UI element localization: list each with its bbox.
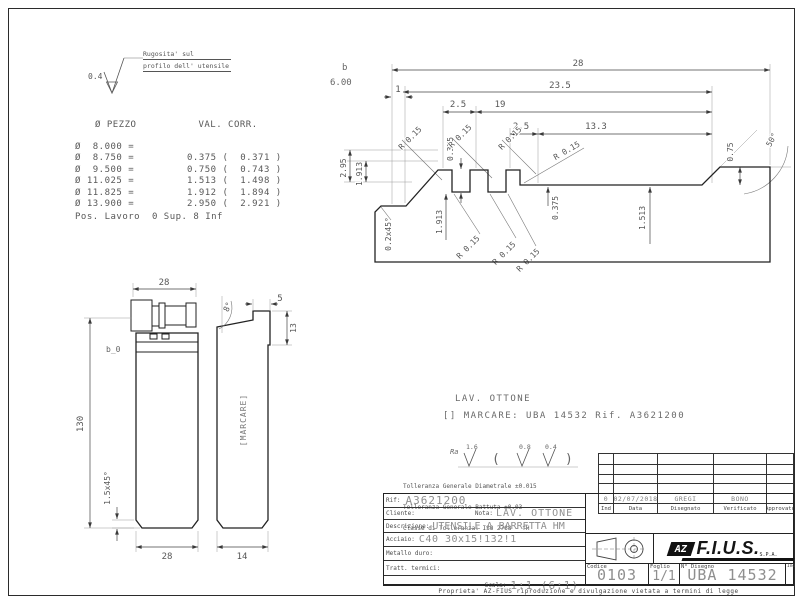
tolerance-line1: Tolleranza Generale Diametrale ±0.015 <box>403 483 537 490</box>
tratt-label: Tratt. termici: <box>386 565 440 572</box>
dim-19: 19 <box>495 100 506 110</box>
title-block-right: AZ F.I.U.S. S.P.A. Codice 0103 Foglio 1/… <box>586 494 793 584</box>
side-view: [MARCARE] 8° 5 13 14 <box>217 294 298 562</box>
dim-0-75: 0.75 <box>726 142 735 161</box>
acciaio-value: C40 30x15!132!1 <box>419 534 517 545</box>
dim-front-chamfer: 1.5x45° <box>103 471 112 505</box>
radius-label: R 0.15 <box>497 125 524 152</box>
radius-label: R 0.15 <box>455 234 482 261</box>
front-body-outline <box>136 333 198 528</box>
acciaio-row: Acciaio: C40 30x15!132!1 <box>384 533 585 547</box>
ra-label: Ra <box>450 448 458 456</box>
first-angle-projection-icon <box>588 535 652 563</box>
front-view: b_0 28 130 1.5x45° 28 <box>76 278 198 562</box>
roughness-note-line2: profilo dell' utensile <box>143 62 231 72</box>
company-logo: AZ F.I.U.S. S.P.A. <box>654 534 793 563</box>
surface-finish-marks: Ra 1.6 ( 0.8 0.4 ) <box>450 443 578 467</box>
dim-side-13: 13 <box>289 323 298 333</box>
radius-label: R 0.15 <box>397 125 424 152</box>
logo-underline <box>682 558 795 561</box>
disegno-cell: N° Disegno UBA 14532 <box>680 564 786 584</box>
projection-symbol-cell <box>586 534 654 563</box>
table-footer: Pos. Lavoro 0 Sup. 8 Inf <box>75 212 282 224</box>
nota-label: Nota: <box>475 510 493 517</box>
ind-label: Ind <box>787 564 795 569</box>
radius-label: R 0.15 <box>447 123 474 150</box>
dim-1-913b: 1.913 <box>435 210 444 234</box>
cliente-row: Cliente: Nota: LAV. OTTONE <box>384 508 585 520</box>
descrizione-row: Descrizione: UTENSILE A BARRETTA HM <box>384 520 585 533</box>
table-row: Ø 8.750 =0.375 ( 0.371 ) <box>75 153 282 165</box>
dim-1-513: 1.513 <box>638 206 647 230</box>
front-profile-head <box>131 300 196 331</box>
table-row: Ø 11.025 =1.513 ( 1.498 ) <box>75 176 282 188</box>
dim-front-28-bottom: 28 <box>162 552 173 562</box>
dim-side-14: 14 <box>237 552 248 562</box>
foglio-cell: Foglio 1/1 <box>649 564 680 584</box>
dim-13-3: 13.3 <box>585 122 607 132</box>
dim-50deg: 50° <box>764 131 779 148</box>
nota-value: LAV. OTTONE <box>496 508 573 519</box>
dim-1: 1 <box>395 85 400 95</box>
table-row: Ø 8.000 = <box>75 142 282 154</box>
profile-view: 28 23.5 2.5 19 2.5 13.3 1 2.95 1.913 0.3… <box>330 59 791 274</box>
roughness-symbol-icon <box>104 58 143 93</box>
b-value: 6.00 <box>330 78 352 88</box>
roughness-note-line1: Rugosita' sul <box>143 50 231 60</box>
descrizione-label: Descrizione: <box>386 523 429 530</box>
correction-table-header: Ø PEZZO VAL. CORR. <box>75 120 282 132</box>
codice-cell: Codice 0103 <box>586 564 649 584</box>
ind-cell: Ind <box>786 564 793 584</box>
finish-check-icon <box>543 449 555 466</box>
dim-0-375b: 0.375 <box>551 196 560 220</box>
descrizione-value: UTENSILE A BARRETTA HM <box>432 521 564 532</box>
marcare-etch-label: [MARCARE] <box>239 394 248 446</box>
rif-row: Rif: A3621200 <box>384 494 585 508</box>
dim-side-5: 5 <box>277 294 282 304</box>
property-notice: Proprieta' AZ-FIUS riproduzione e divulg… <box>383 585 794 596</box>
note-lav-ottone: LAV. OTTONE <box>455 394 531 404</box>
company-name: F.I.U.S. <box>696 538 759 559</box>
acciaio-label: Acciaio: <box>386 536 415 543</box>
drawing-sheet: { "colors": {"label":"#4d4d4d","cad":"#8… <box>0 0 800 600</box>
roughness-value: 0.4 <box>88 72 102 81</box>
disegno-label: N° Disegno <box>681 564 714 570</box>
dim-front-130: 130 <box>76 416 86 432</box>
paren-close: ) <box>565 452 573 467</box>
b0-label: b_0 <box>106 345 121 354</box>
az-logo-icon: AZ <box>667 542 696 556</box>
radius-label: R 0.15 <box>552 140 582 162</box>
codice-label: Codice <box>587 564 607 570</box>
logo-row: AZ F.I.U.S. S.P.A. <box>586 534 793 563</box>
title-block-bottom-row: Codice 0103 Foglio 1/1 N° Disegno UBA 14… <box>586 563 793 584</box>
dim-28: 28 <box>573 59 584 69</box>
title-block: Rif: A3621200 Cliente: Nota: LAV. OTTONE… <box>383 493 794 585</box>
table-row: Ø 11.825 =1.912 ( 1.894 ) <box>75 188 282 200</box>
paren-open: ( <box>492 452 500 467</box>
front-dimensions: 28 130 1.5x45° 28 <box>76 278 198 562</box>
dim-chamfer: 0.2x45° <box>384 217 393 251</box>
dim-front-28-top: 28 <box>159 278 170 288</box>
col-valcorr: VAL. CORR. <box>198 120 257 132</box>
dim-23-5: 23.5 <box>549 81 571 91</box>
side-dimensions: 8° 5 13 14 <box>217 294 298 562</box>
roughness-note: Rugosita' sul profilo dell' utensile <box>143 50 231 74</box>
title-block-left: Rif: A3621200 Cliente: Nota: LAV. OTTONE… <box>384 494 586 584</box>
rif-label: Rif: <box>386 497 400 504</box>
foglio-label: Foglio <box>650 564 670 570</box>
col-pezzo: Ø PEZZO <box>95 120 136 132</box>
correction-table: Ø PEZZO VAL. CORR. Ø 8.000 = Ø 8.750 =0.… <box>75 120 282 223</box>
tratt-row: Tratt. termici: <box>384 561 585 576</box>
dim-2-95: 2.95 <box>339 158 348 177</box>
table-row: Ø 13.900 =2.950 ( 2.921 ) <box>75 199 282 211</box>
metallo-row: Metallo duro: <box>384 547 585 561</box>
note-marcare: [] MARCARE: UBA 14532 Rif. A3621200 <box>443 411 685 421</box>
dim-1-913: 1.913 <box>355 162 364 186</box>
foglio-value: 1/1 <box>652 569 675 584</box>
finish-check-icon <box>464 449 476 466</box>
finish-check-icon <box>517 449 529 466</box>
rif-value: A3621200 <box>405 494 466 507</box>
cliente-label: Cliente: <box>386 510 415 517</box>
table-row: Ø 9.500 =0.750 ( 0.743 ) <box>75 165 282 177</box>
b-label: b <box>342 63 347 73</box>
dim-2-5: 2.5 <box>450 100 466 110</box>
radius-label: R 0.15 <box>515 247 542 274</box>
metallo-label: Metallo duro: <box>386 550 433 557</box>
